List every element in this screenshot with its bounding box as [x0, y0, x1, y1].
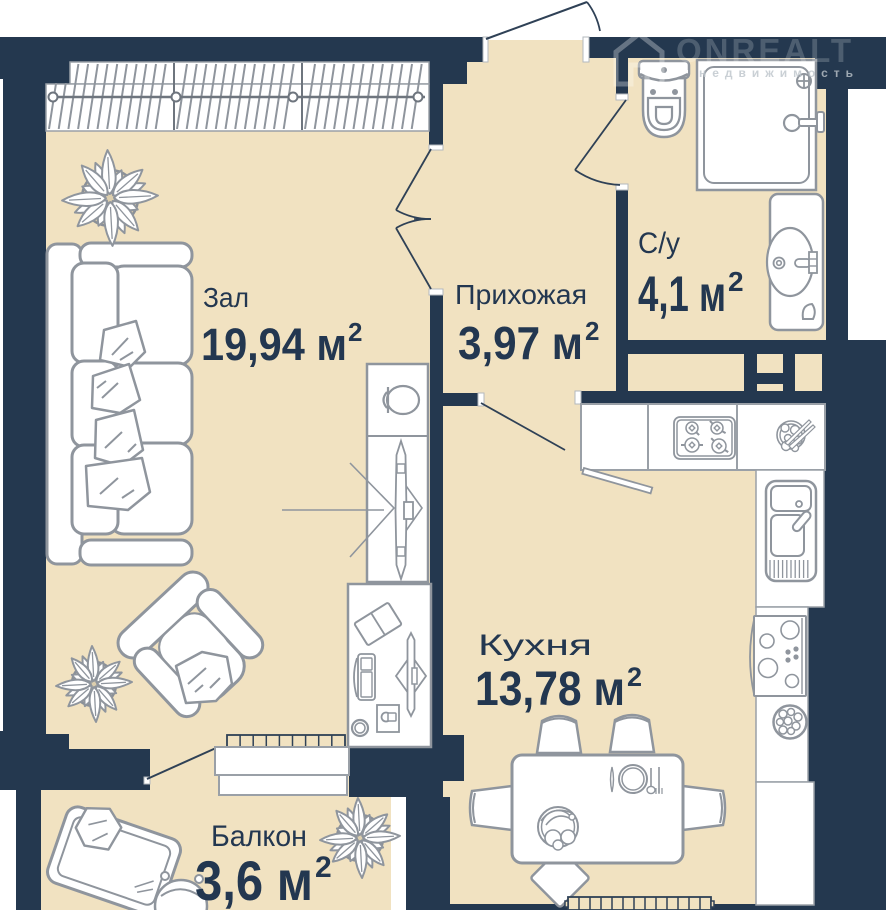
svg-text:4,1 м: 4,1 м [638, 266, 726, 322]
svg-text:19,94 м: 19,94 м [201, 319, 347, 370]
svg-text:Прихожая: Прихожая [455, 279, 587, 310]
svg-text:2: 2 [627, 662, 642, 692]
svg-text:2: 2 [585, 316, 599, 346]
svg-text:Зал: Зал [203, 282, 249, 313]
svg-text:Кухня: Кухня [478, 629, 592, 662]
svg-text:2: 2 [728, 266, 744, 297]
svg-text:недвижимость: недвижимость [699, 66, 859, 80]
svg-text:3,97 м: 3,97 м [458, 317, 583, 369]
svg-text:13,78 м: 13,78 м [475, 663, 625, 716]
svg-text:2: 2 [315, 851, 332, 884]
svg-text:3,6 м: 3,6 м [195, 849, 313, 910]
svg-text:ONREALT: ONREALT [676, 32, 854, 69]
svg-text:2: 2 [348, 317, 362, 347]
svg-text:С/у: С/у [638, 227, 680, 260]
